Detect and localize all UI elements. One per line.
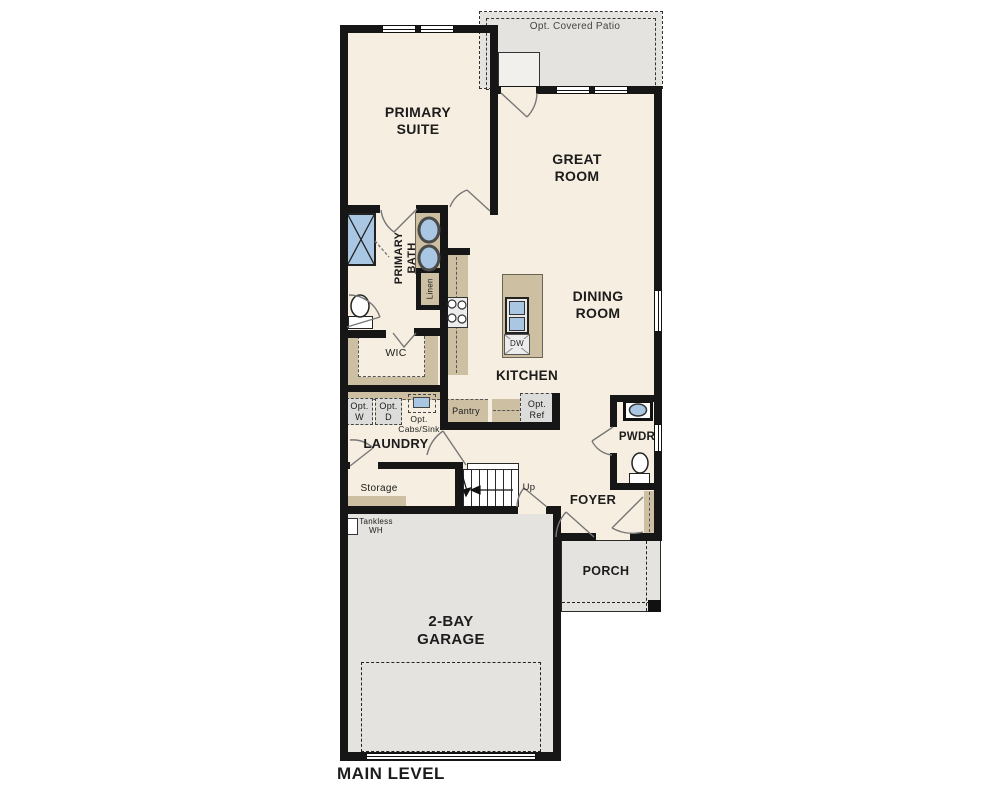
stairs-rail: [467, 463, 519, 470]
kitchen-label: KITCHEN: [492, 368, 562, 384]
wall-pantry-bottom: [440, 422, 560, 430]
wall-toilet-nook: [340, 330, 386, 338]
wall-foyer-bottom-left: [560, 533, 596, 541]
opt-washer-label: Opt. W: [350, 401, 370, 422]
dining-room-label: DINING ROOM: [566, 288, 630, 321]
opt-washer-box: Opt. W: [346, 398, 373, 425]
pantry-label: Pantry: [446, 406, 486, 417]
foyer-label: FOYER: [564, 492, 622, 507]
wall-optref-right: [552, 393, 560, 430]
wall-bath-kitchen: [440, 212, 448, 430]
opt-counter: [492, 399, 520, 423]
garage-door-zone-dashed: [361, 662, 541, 752]
greatroom-window-1: [556, 86, 590, 94]
linen-label: Linen: [425, 274, 434, 304]
laundry-label: LAUNDRY: [348, 436, 444, 451]
stairs: [462, 469, 519, 507]
coat-closet-dashed-line: [649, 492, 650, 532]
wall-suite-top: [340, 25, 498, 33]
opt-cabs-sink-label: Opt. Cabs/Sink: [394, 414, 444, 434]
shower: [346, 213, 376, 266]
cooktop: [446, 297, 468, 328]
patio-door-opening: [501, 87, 536, 94]
opt-sink: [413, 397, 430, 408]
wall-suite-right: [490, 25, 498, 215]
porch-label: PORCH: [577, 564, 635, 579]
wall-laundry-bottom-right: [378, 462, 463, 469]
island-sink-bowl-bottom: [509, 317, 525, 331]
storage-label: Storage: [350, 483, 408, 495]
main-level-title: MAIN LEVEL: [337, 764, 477, 784]
garage-door: [366, 753, 536, 760]
patio-label: Opt. Covered Patio: [505, 21, 645, 33]
wall-foyer-bottom-right: [630, 533, 662, 541]
wall-wic-bottom: [340, 385, 448, 392]
wall-pwdr-top: [610, 395, 662, 402]
porch-dashed-line-horizontal: [562, 602, 660, 603]
patio-step: [498, 52, 540, 88]
up-label: Up: [518, 482, 540, 493]
tankless-wh-label: Tankless WH: [354, 517, 398, 536]
dishwasher-label: DW: [505, 339, 529, 348]
pwdr-label: PWDR: [614, 431, 660, 445]
greatroom-window-2: [594, 86, 628, 94]
wall-wic-top: [414, 328, 444, 336]
opt-ref-label: Opt. Ref: [525, 399, 549, 420]
garage-label: 2-BAY GARAGE: [416, 613, 486, 648]
suite-window-2: [420, 25, 454, 33]
wall-kitchen-counter-top: [440, 248, 470, 255]
wall-suite-bottom-left: [340, 205, 380, 213]
wall-left: [340, 25, 348, 761]
primary-suite-label: PRIMARY SUITE: [383, 104, 453, 137]
porch-dashed-line-vertical: [646, 541, 647, 611]
wall-pwdr-left-upper: [610, 395, 617, 427]
wall-garage-top-left: [340, 506, 518, 514]
dining-window: [654, 290, 662, 332]
pwdr-sink-counter: [623, 400, 653, 421]
opt-counter-dashed-line: [493, 410, 519, 411]
wall-pwdr-bottom: [610, 483, 662, 490]
great-room-label: GREAT ROOM: [547, 151, 607, 184]
wic-label: WIC: [376, 347, 416, 359]
primary-bath-label: PRIMARY BATH: [393, 231, 419, 285]
floor-plan: Opt. W Opt. D Opt. Ref: [0, 0, 1000, 800]
wall-laundry-bottom-left: [340, 462, 350, 469]
wall-garage-right: [553, 506, 561, 761]
bath-toilet-tank: [348, 316, 373, 329]
porch-post: [648, 600, 661, 612]
island-sink-bowl-top: [509, 301, 525, 315]
suite-window-1: [382, 25, 416, 33]
